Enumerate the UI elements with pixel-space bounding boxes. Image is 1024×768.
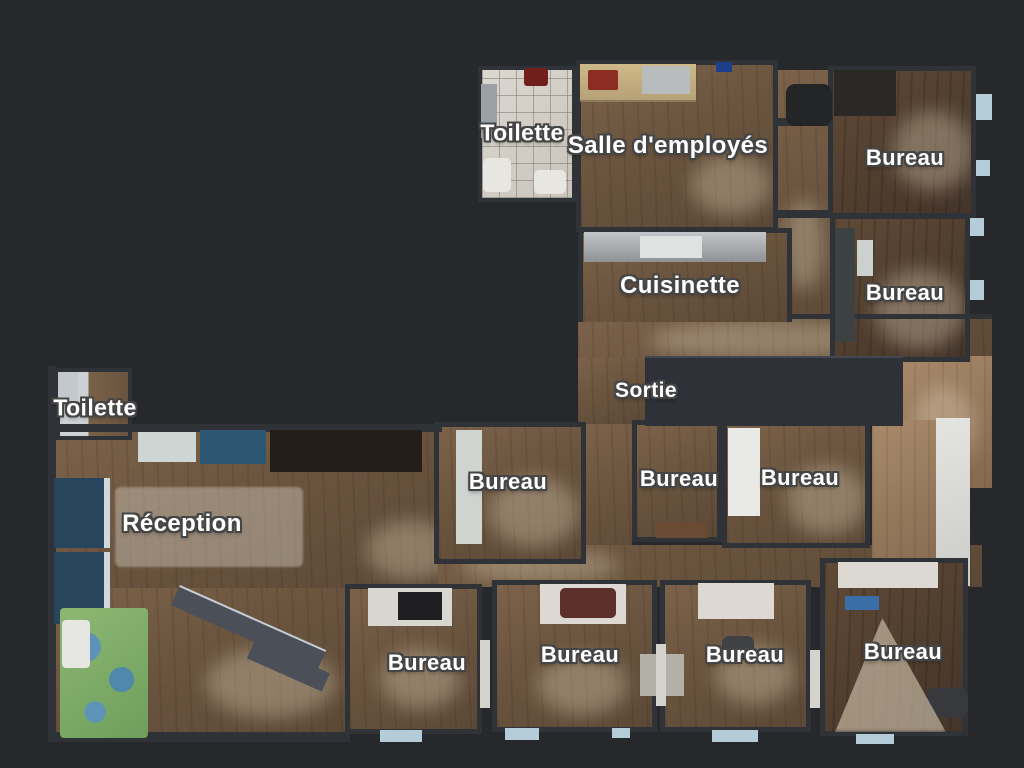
- door-pillar: [480, 640, 490, 708]
- window-sill: [976, 94, 992, 120]
- sofa: [54, 478, 110, 548]
- room-label-bureau-top-right[interactable]: Bureau: [866, 145, 944, 171]
- room-label-salle-demployes[interactable]: Salle d'employés: [568, 132, 768, 160]
- window-sill: [505, 728, 539, 740]
- window-sill: [970, 218, 984, 236]
- bench: [656, 522, 708, 538]
- red-bin: [524, 68, 548, 86]
- room-label-cuisinette[interactable]: Cuisinette: [620, 272, 740, 300]
- room-label-bureau-bottom-4[interactable]: Bureau: [864, 639, 942, 665]
- toilet: [483, 158, 511, 192]
- toilet: [534, 170, 566, 194]
- room-label-bureau-bottom-2[interactable]: Bureau: [541, 642, 619, 668]
- appliance: [642, 66, 690, 94]
- cabinet: [835, 228, 855, 342]
- wall: [778, 210, 830, 218]
- desk: [698, 583, 774, 619]
- door-mat: [270, 430, 422, 472]
- coffee-machine: [588, 70, 618, 90]
- blue-object: [716, 62, 732, 72]
- room-label-bureau-mid-left[interactable]: Bureau: [469, 469, 547, 495]
- floorplan-viewport: Toilette Salle d'employés Bureau Cuisine…: [0, 0, 1024, 768]
- window-sill: [712, 730, 758, 742]
- whiteboard: [857, 240, 873, 276]
- room-label-sortie[interactable]: Sortie: [615, 379, 677, 403]
- counter: [838, 562, 938, 588]
- light-patch: [366, 520, 438, 580]
- room-label-bureau-right[interactable]: Bureau: [866, 280, 944, 306]
- counter: [728, 428, 760, 516]
- room-label-bureau-mid-center[interactable]: Bureau: [640, 466, 718, 492]
- office-chair: [560, 588, 616, 618]
- wall: [792, 314, 992, 319]
- storage-bins: [200, 430, 266, 464]
- sink: [640, 236, 702, 258]
- light-patch: [691, 155, 771, 215]
- window-sill: [976, 160, 990, 176]
- window-sill: [612, 728, 630, 738]
- window-sill: [970, 280, 984, 300]
- door-pillar: [810, 650, 820, 708]
- room-label-toilette-left[interactable]: Toilette: [53, 395, 136, 422]
- room-label-bureau-bottom-3[interactable]: Bureau: [706, 642, 784, 668]
- monitor: [398, 592, 442, 620]
- office-chair: [786, 84, 832, 126]
- kids-sofa: [62, 620, 90, 668]
- desk: [834, 70, 896, 116]
- room-label-toilette-top[interactable]: Toilette: [480, 120, 563, 147]
- room-label-bureau-mid-right[interactable]: Bureau: [761, 465, 839, 491]
- room-label-bureau-bottom-1[interactable]: Bureau: [388, 650, 466, 676]
- blue-object: [845, 596, 879, 610]
- unscanned-area: [645, 356, 903, 426]
- side-table: [138, 432, 196, 462]
- room-label-reception[interactable]: Réception: [122, 510, 242, 538]
- window-sill: [380, 730, 422, 742]
- door-pillar: [656, 644, 666, 706]
- window-sill: [856, 734, 894, 744]
